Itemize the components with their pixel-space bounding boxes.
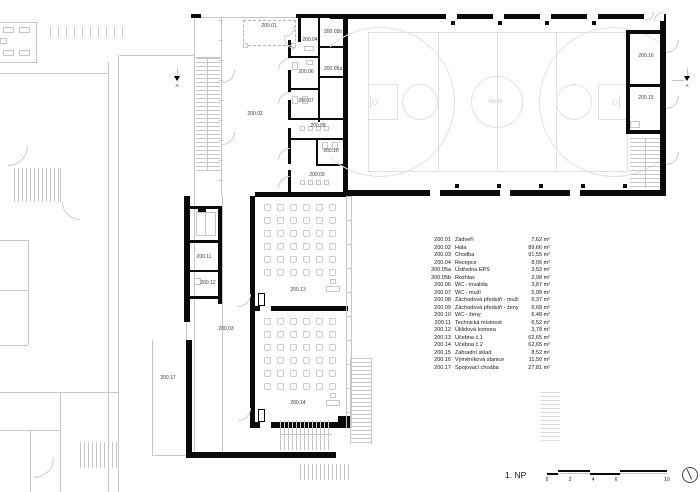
north-needle (687, 469, 693, 479)
legend-num: 200.13 (424, 335, 451, 343)
legend-name: Zahradní sklad (455, 350, 525, 358)
legend-num: 200.05b (424, 275, 451, 283)
seat (329, 269, 336, 276)
g (36, 22, 37, 63)
legend-area: 62,65 m² (525, 335, 550, 343)
room-label-200.13: 200.13 (290, 287, 305, 293)
room-label-200.01: 200.01 (261, 23, 276, 29)
room-label-200.03: 200.03 (218, 326, 233, 332)
section-label: A (175, 83, 178, 88)
g (120, 55, 195, 56)
seat (329, 230, 336, 237)
seat (264, 370, 271, 377)
w (186, 340, 192, 455)
seat (277, 383, 284, 390)
legend-name: Rozhlas (455, 275, 525, 283)
legend-num: 200.15 (424, 350, 451, 358)
g (108, 62, 109, 492)
sink-fixture (306, 60, 313, 65)
legend-num: 200.08 (424, 297, 451, 305)
g (60, 392, 61, 492)
legend-name: Učebna č.1 (455, 335, 525, 343)
g (207, 58, 208, 170)
seat (316, 344, 323, 351)
seat (329, 357, 336, 364)
w (190, 270, 220, 272)
seat (316, 230, 323, 237)
scale-tick: 4 (592, 477, 595, 483)
door-arc (34, 458, 54, 478)
g (74, 27, 75, 37)
seat (303, 243, 310, 250)
w (590, 473, 620, 475)
legend-area: 91,55 m² (525, 252, 550, 260)
w (316, 138, 318, 166)
g (0, 392, 118, 393)
ramp-hatch (196, 58, 220, 170)
sports-court (330, 19, 660, 190)
box (330, 279, 336, 284)
tickv (219, 20, 223, 190)
box (243, 43, 248, 48)
legend-area: 3,78 m² (525, 327, 550, 335)
g (177, 68, 178, 76)
seat (264, 217, 271, 224)
g (186, 322, 187, 340)
legend-area: 6,48 m² (525, 312, 550, 320)
scale-tick: 10 (664, 477, 670, 483)
teacher-desk (326, 400, 340, 406)
gl (370, 95, 371, 109)
legend-name: Úklidová komora (455, 327, 525, 335)
g (0, 22, 38, 23)
w (558, 470, 590, 472)
g (60, 168, 61, 202)
legend-row: 200.06WC - invalida3,87 m² (424, 282, 550, 290)
legend-row: 200.02Hala89,66 m² (424, 245, 550, 253)
legend-name: WC - invalida (455, 282, 525, 290)
stair-hatch (80, 442, 118, 468)
seat (316, 383, 323, 390)
box (3, 50, 14, 56)
legend-row: 200.05bRozhlas2,98 m² (424, 275, 550, 283)
door-arc (278, 148, 290, 160)
seat (316, 204, 323, 211)
g (350, 358, 351, 444)
legend-row: 200.08Záchodová předsíň - muži6,37 m² (424, 297, 550, 305)
seat (290, 344, 297, 351)
seat (316, 217, 323, 224)
legend-row: 200.16Výměníková stanice11,50 m² (424, 357, 550, 365)
box (3, 27, 14, 33)
seat (316, 243, 323, 250)
seat (303, 256, 310, 263)
sink-fixture (316, 180, 321, 185)
seat (264, 230, 271, 237)
room-label-200.08: 200.08 (310, 123, 325, 129)
g (0, 290, 28, 291)
legend-row: 200.04Recepce8,06 m² (424, 260, 550, 268)
w (198, 209, 206, 212)
g (0, 62, 38, 63)
floor-title: 1. NP (505, 470, 526, 480)
seat (277, 230, 284, 237)
legend-num: 200.05a (424, 267, 451, 275)
basket-hoop (612, 99, 618, 105)
legend-area: 3,53 m² (525, 267, 550, 275)
seat (329, 243, 336, 250)
g (28, 240, 29, 345)
g (205, 212, 206, 236)
legend-row: 200.17Spojovací chodba27,81 m² (424, 365, 550, 373)
seat (277, 269, 284, 276)
gl (619, 95, 620, 109)
seat (277, 370, 284, 377)
g (58, 27, 59, 37)
legend-area: 6,68 m² (525, 305, 550, 313)
w (288, 56, 320, 58)
room-label-200.14: 200.14 (290, 400, 305, 406)
seat (303, 357, 310, 364)
box (19, 27, 30, 33)
legend-area: 3,87 m² (525, 282, 550, 290)
room-label-200.06: 200.06 (298, 69, 313, 75)
stair-hatch (280, 420, 332, 450)
legend-num: 200.07 (424, 290, 451, 298)
w (626, 130, 666, 134)
seat (264, 357, 271, 364)
legend-row: 200.11Technická místnost6,52 m² (424, 320, 550, 328)
g (645, 138, 646, 188)
floor-plan-drawing: A A 200 (0, 0, 700, 492)
w (547, 473, 558, 475)
seat (277, 204, 284, 211)
seat (329, 331, 336, 338)
legend-num: 200.10 (424, 312, 451, 320)
w (626, 84, 666, 87)
g (66, 27, 67, 37)
door-arc (278, 176, 290, 188)
g (14, 168, 15, 202)
seat (329, 318, 336, 325)
legend-num: 200.06 (424, 282, 451, 290)
room-label-200.07: 200.07 (298, 98, 313, 104)
room-schedule-legend: 200.01Zádveří7,62 m²200.02Hala89,66 m²20… (424, 237, 550, 372)
seat (303, 370, 310, 377)
shape: 200.01Zádveří7,62 m²200.02Hala89,66 m²20… (424, 237, 550, 372)
seat (277, 318, 284, 325)
seat (290, 204, 297, 211)
sink-fixture (300, 126, 305, 131)
legend-area: 7,62 m² (525, 237, 550, 245)
g (106, 27, 107, 37)
door-leaf (258, 409, 265, 422)
legend-num: 200.12 (424, 327, 451, 335)
north-symbol (682, 467, 698, 483)
g (122, 27, 123, 37)
w (620, 470, 667, 472)
room-label-200.16: 200.16 (638, 53, 653, 59)
seat (303, 269, 310, 276)
legend-row: 200.10WC - ženy6,48 m² (424, 312, 550, 320)
seat (277, 331, 284, 338)
legend-name: Chodba (455, 252, 525, 260)
white (570, 190, 580, 196)
wc-fixture (292, 96, 298, 104)
g (152, 340, 153, 455)
legend-row: 200.12Úklidová komora3,78 m² (424, 327, 550, 335)
g (0, 73, 108, 74)
seat (290, 370, 297, 377)
legend-name: Výměníková stanice (455, 357, 525, 365)
w (184, 196, 190, 322)
seat (329, 256, 336, 263)
seat (303, 217, 310, 224)
legend-area: 8,06 m² (525, 260, 550, 268)
g (82, 27, 83, 37)
section-arrow (174, 76, 180, 81)
seat (290, 230, 297, 237)
door-arc (8, 146, 28, 166)
teacher-desk (326, 286, 340, 292)
door-arc (666, 40, 679, 53)
seat (329, 217, 336, 224)
door-arc (666, 96, 679, 109)
room-label-200.12: 200.12 (200, 280, 215, 286)
legend-num: 200.02 (424, 245, 451, 253)
door-arc (666, 152, 679, 165)
g (196, 17, 296, 18)
seat (316, 370, 323, 377)
legend-area: 8,52 m² (525, 350, 550, 358)
elevator-car (196, 212, 216, 236)
legend-row: 200.14Učebna č.262,65 m² (424, 342, 550, 350)
white (500, 190, 510, 196)
legend-num: 200.04 (424, 260, 451, 268)
wc-fixture (292, 62, 298, 70)
seat (264, 344, 271, 351)
legend-name: Ústředna EPS (455, 267, 525, 275)
room-label-200.04: 200.04 (302, 37, 317, 43)
w (250, 196, 255, 428)
door-arc (284, 38, 295, 49)
seat (264, 204, 271, 211)
scale-tick: 6 (615, 477, 618, 483)
seat (303, 318, 310, 325)
seat (277, 217, 284, 224)
seat (303, 204, 310, 211)
seat (290, 318, 297, 325)
legend-name: Záchodová předsíň - muži (455, 297, 525, 305)
seat (290, 256, 297, 263)
legend-area: 2,98 m² (525, 275, 550, 283)
g (0, 240, 28, 241)
w (190, 296, 220, 299)
seat (290, 383, 297, 390)
room-label-200.05b: 200.05b (324, 29, 342, 35)
sink-fixture (324, 180, 329, 185)
legend-name: Učebna č.2 (455, 342, 525, 350)
seat (303, 230, 310, 237)
basket-hoop (372, 99, 378, 105)
seat (290, 331, 297, 338)
room-label-200.09: 200.09 (309, 172, 324, 178)
w (318, 18, 320, 122)
seat (277, 344, 284, 351)
room-label-200.05a: 200.05a (324, 66, 342, 72)
seat (264, 318, 271, 325)
stair-hatch (540, 392, 560, 442)
seat (264, 331, 271, 338)
seat (264, 243, 271, 250)
room-label-200.10: 200.10 (323, 148, 338, 154)
seat (329, 344, 336, 351)
room-label-200.11: 200.11 (197, 254, 212, 260)
legend-name: Zádveří (455, 237, 525, 245)
stair-hatch (300, 464, 350, 480)
seat (329, 204, 336, 211)
legend-row: 200.09Záchodová předsíň - ženy6,68 m² (424, 305, 550, 313)
seat (264, 383, 271, 390)
legend-row: 200.07WC - muži5,99 m² (424, 290, 550, 298)
box (19, 50, 30, 56)
room-label-200.02: 200.02 (247, 111, 262, 117)
legend-num: 200.09 (424, 305, 451, 313)
door-arc (278, 58, 290, 70)
legend-area: 27,81 m² (525, 365, 550, 373)
w (288, 88, 320, 90)
box (330, 393, 336, 398)
legend-num: 200.16 (424, 357, 451, 365)
box (0, 38, 7, 44)
g (194, 18, 195, 455)
classroom-seats (264, 204, 336, 276)
g (118, 55, 119, 492)
legend-name: Technická místnost (455, 320, 525, 328)
legend-name: WC - ženy (455, 312, 525, 320)
room-label-200.17: 200.17 (160, 375, 175, 381)
w (186, 452, 336, 458)
g (371, 358, 372, 444)
seat (277, 357, 284, 364)
g (196, 57, 221, 58)
seat (277, 243, 284, 250)
door-leaf (258, 293, 265, 306)
room-label-100.15: 100.15 (488, 99, 502, 104)
g (98, 27, 99, 37)
g (90, 27, 91, 37)
g (196, 170, 221, 171)
g (30, 430, 31, 492)
seat (316, 318, 323, 325)
legend-num: 200.03 (424, 252, 451, 260)
seat (316, 331, 323, 338)
w (626, 30, 630, 88)
seat (290, 243, 297, 250)
legend-num: 200.01 (424, 237, 451, 245)
seat (277, 256, 284, 263)
legend-area: 11,50 m² (525, 357, 550, 365)
g (672, 80, 684, 81)
legend-row: 200.15Zahradní sklad8,52 m² (424, 350, 550, 358)
seat (316, 357, 323, 364)
w (218, 206, 222, 304)
legend-row: 200.01Zádveří7,62 m² (424, 237, 550, 245)
seat (264, 269, 271, 276)
seat (290, 217, 297, 224)
white (260, 422, 271, 428)
white (260, 306, 271, 311)
w (191, 14, 201, 18)
legend-row: 200.03Chodba91,55 m² (424, 252, 550, 260)
g (50, 27, 51, 37)
classroom-seats (264, 318, 336, 390)
legend-area: 5,99 m² (525, 290, 550, 298)
legend-name: Hala (455, 245, 525, 253)
stair-hatch (14, 168, 60, 202)
w (626, 30, 666, 34)
g (687, 68, 688, 76)
legend-area: 89,66 m² (525, 245, 550, 253)
legend-name: Recepce (455, 260, 525, 268)
stair-hatch (350, 358, 372, 444)
legend-name: WC - muži (455, 290, 525, 298)
door-arc (62, 202, 80, 220)
seat (303, 331, 310, 338)
scale-tick: 0 (546, 477, 549, 483)
seat (290, 357, 297, 364)
seat (303, 344, 310, 351)
seat (316, 256, 323, 263)
seat (303, 383, 310, 390)
room-label-200.15: 200.15 (638, 95, 653, 101)
scale-tick: 2 (569, 477, 572, 483)
seat (329, 383, 336, 390)
w (190, 240, 222, 243)
legend-num: 200.17 (424, 365, 451, 373)
g (0, 345, 28, 346)
fixture (630, 121, 640, 128)
legend-row: 200.05aÚstředna EPS3,53 m² (424, 267, 550, 275)
legend-name: Záchodová předsíň - ženy (455, 305, 525, 313)
legend-num: 200.14 (424, 342, 451, 350)
sink-fixture (308, 180, 313, 185)
door-arc (222, 70, 235, 83)
sink-fixture (300, 180, 305, 185)
door-arc (278, 92, 290, 104)
legend-name: Spojovací chodba (455, 365, 525, 373)
g (114, 27, 115, 37)
seat (316, 269, 323, 276)
legend-area: 6,37 m² (525, 297, 550, 305)
legend-area: 6,52 m² (525, 320, 550, 328)
legend-row: 200.13Učebna č.162,65 m² (424, 335, 550, 343)
w (255, 192, 348, 197)
seat (264, 256, 271, 263)
door-arc (222, 132, 235, 145)
legend-num: 200.11 (424, 320, 451, 328)
seat (290, 269, 297, 276)
g (280, 434, 332, 435)
section-label: A (685, 83, 688, 88)
white (430, 190, 440, 196)
legend-area: 62,65 m² (525, 342, 550, 350)
w (190, 206, 222, 209)
seat (329, 370, 336, 377)
section-arrow (684, 76, 690, 81)
w (298, 18, 301, 42)
reception-desk (304, 46, 314, 51)
